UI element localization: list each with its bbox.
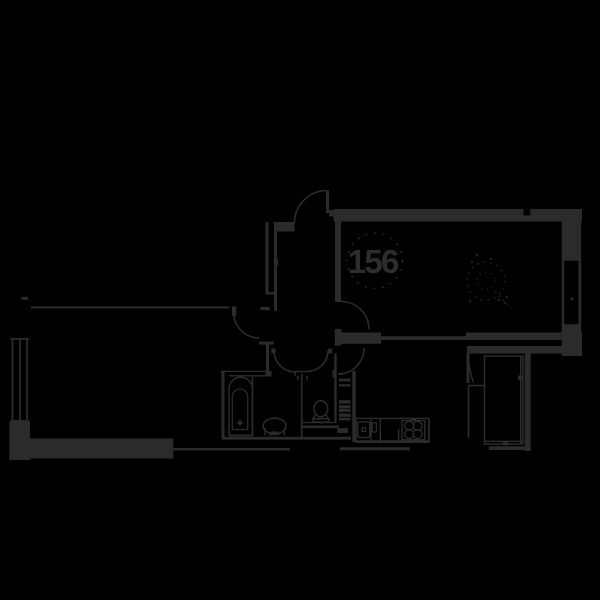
svg-text:156: 156: [348, 243, 399, 280]
